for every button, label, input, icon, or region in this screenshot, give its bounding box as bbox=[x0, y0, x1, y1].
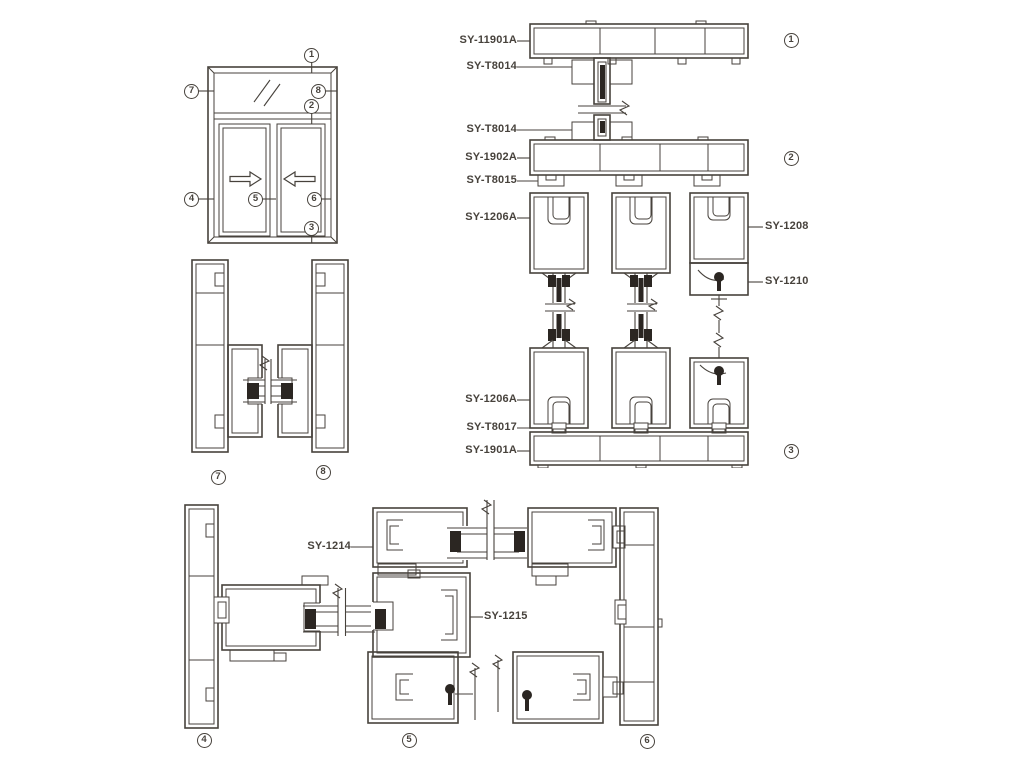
part-label-sy-t8015: SY-T8015 bbox=[466, 174, 517, 187]
callout-elevation-6: 6 bbox=[307, 192, 322, 207]
callout-elevation-8: 8 bbox=[311, 84, 326, 99]
horizontal-sections-drawing bbox=[175, 498, 675, 758]
callout-detail-3: 3 bbox=[784, 444, 799, 459]
callout-elevation-4: 4 bbox=[184, 192, 199, 207]
part-label-sy-1206a-upper: SY-1206A bbox=[465, 211, 517, 224]
part-label-sy-1214: SY-1214 bbox=[307, 540, 351, 553]
part-label-sy-1215: SY-1215 bbox=[484, 610, 528, 623]
callout-detail-2: 2 bbox=[784, 151, 799, 166]
arrow-right-icon bbox=[230, 172, 261, 186]
callout-section-7: 7 bbox=[211, 470, 226, 485]
technical-drawing-canvas: SY-11901A SY-T8014 SY-T8014 SY-1902A SY-… bbox=[0, 0, 1020, 773]
window-elevation-drawing bbox=[178, 46, 353, 256]
callout-elevation-2: 2 bbox=[304, 99, 319, 114]
callout-detail-1: 1 bbox=[784, 33, 799, 48]
callout-detail-6: 6 bbox=[640, 734, 655, 749]
part-label-sy-t8014-lower: SY-T8014 bbox=[466, 123, 517, 136]
part-label-sy-1210: SY-1210 bbox=[765, 275, 809, 288]
section-7-8-drawing bbox=[185, 253, 355, 488]
part-label-sy-t8014-upper: SY-T8014 bbox=[466, 60, 517, 73]
callout-detail-5: 5 bbox=[402, 733, 417, 748]
part-label-sy-11901a: SY-11901A bbox=[460, 34, 517, 47]
callout-detail-4: 4 bbox=[197, 733, 212, 748]
part-label-sy-1901a: SY-1901A bbox=[465, 444, 517, 457]
callout-elevation-1: 1 bbox=[304, 48, 319, 63]
callout-elevation-5: 5 bbox=[248, 192, 263, 207]
callout-section-8: 8 bbox=[316, 465, 331, 480]
part-label-sy-1902a: SY-1902A bbox=[465, 151, 517, 164]
part-label-sy-1208: SY-1208 bbox=[765, 220, 809, 233]
part-label-sy-t8017: SY-T8017 bbox=[466, 421, 517, 434]
callout-elevation-3: 3 bbox=[304, 221, 319, 236]
part-label-sy-1206a-lower: SY-1206A bbox=[465, 393, 517, 406]
callout-elevation-7: 7 bbox=[184, 84, 199, 99]
arrow-left-icon bbox=[284, 172, 315, 186]
